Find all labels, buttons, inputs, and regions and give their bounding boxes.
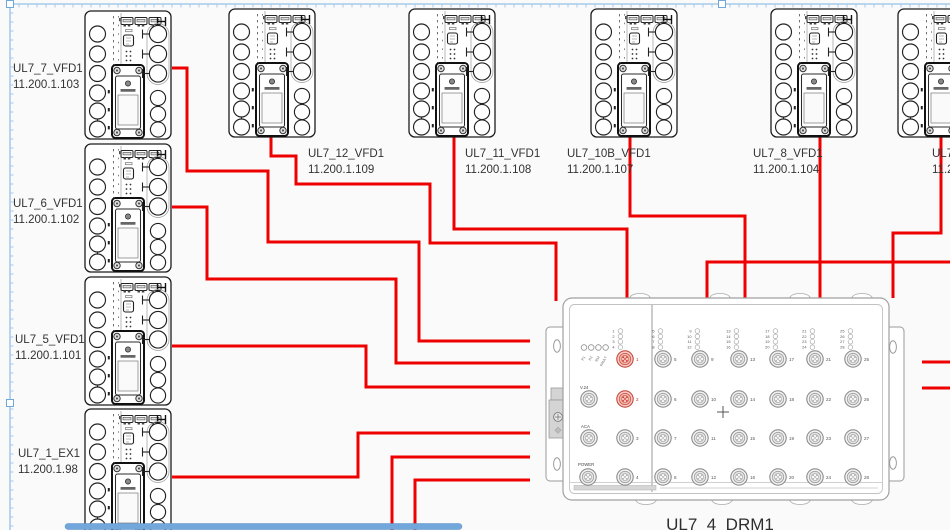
led-bank-indicator (848, 340, 853, 345)
m12-port-8[interactable] (655, 469, 671, 485)
led-bank-number: 3 (612, 339, 614, 344)
led-bank-indicator (618, 334, 623, 339)
scrollbar-thumb[interactable] (65, 524, 462, 530)
led-bank-number: 11 (687, 339, 691, 344)
led-bank-number: 16 (726, 345, 730, 350)
device-ip: 11.200.1.98 (18, 464, 78, 476)
led-bank-indicator (734, 334, 739, 339)
led-bank-indicator (773, 345, 778, 350)
m12-port-15[interactable] (731, 430, 747, 446)
port-number: 24 (826, 475, 832, 480)
led-bank-indicator (618, 329, 623, 334)
led-bank-number: 5 (652, 328, 654, 333)
port-number: 10 (711, 397, 717, 402)
aux-port-label-ACA: ACA (581, 424, 590, 429)
port-number: 18 (789, 397, 795, 402)
led-bank-number: 1 (612, 328, 614, 333)
m12-port-17[interactable] (770, 351, 786, 367)
led-bank-indicator (695, 340, 700, 345)
port-number: 17 (789, 357, 795, 362)
m12-port-27[interactable] (845, 430, 861, 446)
led-bank-number: 9 (689, 328, 691, 333)
m12-port-19[interactable] (770, 430, 786, 446)
m12-port-24[interactable] (807, 469, 823, 485)
port-number: 11 (711, 436, 716, 441)
port-number: 8 (674, 475, 677, 480)
device-UL7_9-partial[interactable] (898, 9, 950, 137)
port-number: 25 (864, 357, 870, 362)
port-number: 26 (864, 397, 870, 402)
m12-port-7[interactable] (655, 430, 671, 446)
device-ip: 11.200.1.104 (753, 164, 820, 176)
m12-port-14[interactable] (731, 391, 747, 407)
led-bank-indicator (848, 334, 853, 339)
device-UL7_10B_VFD1[interactable] (591, 9, 677, 137)
selection-handle[interactable] (719, 1, 726, 8)
led-bank-number: 2 (612, 334, 614, 339)
m12-port-12[interactable] (692, 469, 708, 485)
led-bank-indicator (658, 329, 663, 334)
m12-port-10[interactable] (692, 391, 708, 407)
hub-device-UL7_4_DRM1[interactable]: P1P2RMFAULTV.24ACAPOWER12341234567856789… (546, 294, 904, 505)
port-number: 7 (674, 436, 677, 441)
led-bank-indicator (658, 334, 663, 339)
status-led-RM (596, 345, 602, 351)
led-bank-number: 26 (840, 334, 844, 339)
device-UL7_11_VFD1[interactable] (409, 9, 495, 137)
port-number: 19 (789, 436, 795, 441)
status-led-P1 (581, 345, 587, 351)
device-UL7_6_VFD1[interactable] (85, 144, 171, 272)
port-number: 6 (674, 397, 677, 402)
led-bank-number: 13 (726, 328, 730, 333)
m12-port-25[interactable] (845, 351, 861, 367)
device-ip: 11.200.1.101 (15, 350, 81, 362)
m12-port-20[interactable] (770, 469, 786, 485)
device-UL7_12_VFD1[interactable] (229, 9, 315, 137)
port-number: 13 (750, 357, 756, 362)
led-bank-number: 23 (802, 339, 806, 344)
led-bank-number: 8 (652, 345, 654, 350)
led-bank-number: 17 (765, 328, 769, 333)
device-label: UL7_1_EX1 (18, 448, 80, 460)
led-bank-number: 22 (802, 334, 806, 339)
port-number: 16 (750, 475, 756, 480)
port-number: 9 (711, 357, 714, 362)
m12-port-22[interactable] (807, 391, 823, 407)
led-bank-number: 19 (765, 339, 769, 344)
device-ip: 11.200.1.108 (465, 164, 531, 176)
led-bank-indicator (810, 329, 815, 334)
device-label: UL7_6_VFD1 (13, 198, 83, 210)
device-UL7_8_VFD1[interactable] (771, 9, 857, 137)
port-number: 28 (864, 475, 870, 480)
port-number: 20 (789, 475, 795, 480)
led-bank-indicator (773, 329, 778, 334)
device-label: UL7_8_VFD1 (753, 148, 823, 160)
m12-port[interactable] (580, 469, 596, 485)
status-led-P2 (588, 345, 594, 351)
m12-port-3[interactable] (617, 430, 633, 446)
m12-port-5[interactable] (655, 351, 671, 367)
m12-port[interactable] (581, 430, 597, 446)
led-bank-number: 25 (840, 328, 844, 333)
led-bank-indicator (618, 340, 623, 345)
led-bank-number: 15 (726, 339, 730, 344)
port-number: 3 (636, 436, 639, 441)
led-bank-indicator (848, 345, 853, 350)
device-ip: 11.200.1.107 (567, 164, 633, 176)
device-label: UL7_10B_VFD1 (567, 148, 651, 160)
led-bank-number: 27 (840, 339, 844, 344)
port-number: 1 (636, 357, 639, 362)
device-ip: 11.200.1.109 (308, 164, 374, 176)
led-bank-number: 18 (765, 334, 769, 339)
m12-port-28[interactable] (845, 469, 861, 485)
device-label: UL7_7_VFD1 (13, 63, 83, 75)
device-label: UL7_5_VFD1 (15, 334, 85, 346)
m12-port-4[interactable] (617, 469, 633, 485)
device-label: UL7_12_VFD1 (308, 148, 384, 160)
device-label: UL7_11_VFD1 (465, 148, 540, 160)
port-number: 23 (826, 436, 832, 441)
m12-port-13[interactable] (731, 351, 747, 367)
m12-port-2[interactable] (617, 391, 633, 407)
led-bank-indicator (658, 340, 663, 345)
led-bank-indicator (773, 340, 778, 345)
device-UL7_5_VFD1[interactable] (85, 277, 171, 405)
m12-port-26[interactable] (845, 391, 861, 407)
m12-port-11[interactable] (692, 430, 708, 446)
selection-handle[interactable] (7, 400, 14, 407)
led-bank-indicator (695, 345, 700, 350)
m12-port-16[interactable] (731, 469, 747, 485)
led-bank-indicator (734, 329, 739, 334)
device-ip: 11.200.1.102 (13, 214, 79, 226)
m12-port-18[interactable] (770, 391, 786, 407)
diagram-canvas[interactable]: P1P2RMFAULTV.24ACAPOWER12341234567856789… (0, 0, 950, 530)
led-bank-indicator (658, 345, 663, 350)
led-bank-indicator (773, 334, 778, 339)
m12-port-1[interactable] (617, 351, 633, 367)
port-number: 27 (864, 436, 870, 441)
m12-port-9[interactable] (692, 351, 708, 367)
led-bank-indicator (810, 334, 815, 339)
port-number: 21 (826, 357, 832, 362)
led-bank-indicator (695, 329, 700, 334)
led-bank-indicator (848, 329, 853, 334)
led-bank-number: 21 (802, 328, 806, 333)
port-number: 4 (636, 475, 639, 480)
m12-port-21[interactable] (807, 351, 823, 367)
led-bank-indicator (810, 345, 815, 350)
led-bank-number: 7 (652, 339, 654, 344)
port-number: 22 (826, 397, 832, 402)
selection-handle[interactable] (7, 1, 14, 8)
device-ip: 11.2 (932, 164, 950, 176)
status-led-FAULT (603, 345, 609, 351)
m12-port-6[interactable] (655, 391, 671, 407)
led-bank-indicator (734, 340, 739, 345)
device-ip: 11.200.1.103 (13, 79, 79, 91)
m12-port[interactable] (581, 391, 597, 407)
device-UL7_1_EX1[interactable] (85, 409, 171, 530)
led-bank-indicator (618, 345, 623, 350)
port-number: 14 (750, 397, 756, 402)
aux-port-label-POWER: POWER (578, 462, 594, 467)
led-bank-number: 6 (652, 334, 654, 339)
m12-port-23[interactable] (807, 430, 823, 446)
port-number: 2 (636, 397, 639, 402)
led-bank-number: 28 (840, 345, 844, 350)
led-bank-indicator (695, 334, 700, 339)
led-bank-indicator (810, 340, 815, 345)
port-number: 15 (750, 436, 756, 441)
aux-port-label-V.24: V.24 (580, 385, 589, 390)
led-bank-indicator (734, 345, 739, 350)
port-number: 5 (674, 357, 677, 362)
device-label: UL7_ (932, 148, 950, 160)
led-bank-number: 12 (687, 345, 691, 350)
port-number: 12 (711, 475, 717, 480)
hub-label: UL7_4_DRM1 (666, 515, 774, 530)
device-UL7_7_VFD1[interactable] (85, 11, 171, 139)
